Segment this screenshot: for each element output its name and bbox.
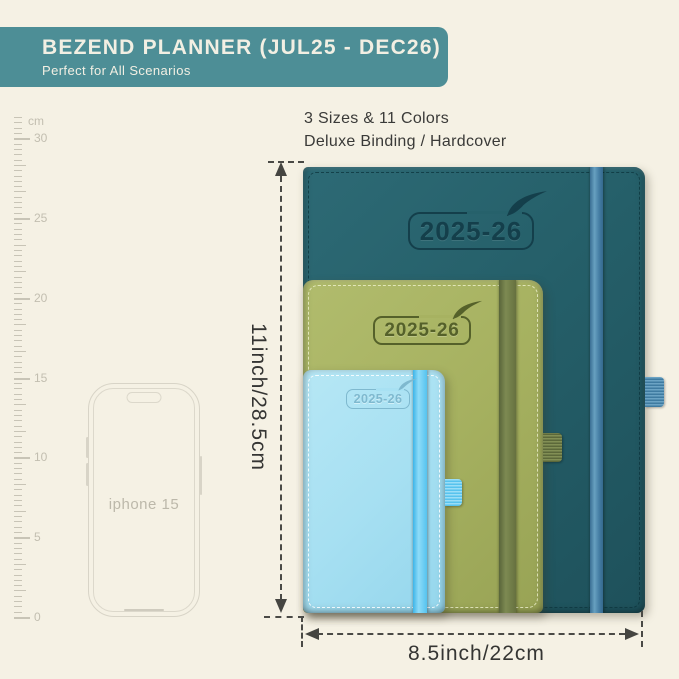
arrow-right-icon: [625, 628, 639, 640]
iphone-label: iphone 15: [89, 496, 199, 513]
ruler-tick: [14, 378, 30, 380]
ruler-tick: [14, 495, 22, 496]
ruler-tick: [14, 516, 22, 517]
ruler-label: 25: [34, 211, 47, 225]
dimension-bracket-left: [301, 616, 303, 647]
ruler-tick: [14, 606, 22, 607]
ruler-tick: [14, 356, 22, 357]
ruler-tick: [14, 388, 22, 389]
year-label: 2025-26: [420, 216, 522, 247]
ruler-tick: [14, 255, 22, 256]
ruler-tick: [14, 420, 22, 421]
feather-icon: [506, 190, 548, 218]
dimension-line-horizontal: [317, 633, 625, 635]
ruler-label: 10: [34, 450, 47, 464]
ruler-tick: [14, 186, 22, 187]
ruler-tick: [14, 585, 22, 586]
iphone-volume-button-down: [86, 463, 89, 486]
ruler-tick: [14, 271, 26, 272]
ruler-tick: [14, 160, 22, 161]
ruler-unit-label: cm: [28, 114, 44, 128]
ruler-tick: [14, 383, 22, 384]
ruler-label: 15: [34, 371, 47, 385]
ruler-tick: [14, 223, 22, 224]
ruler-label: 5: [34, 530, 41, 544]
ruler-tick: [14, 505, 22, 506]
ruler-tick: [14, 601, 22, 602]
ruler-tick: [14, 351, 26, 352]
ruler-tick: [14, 176, 22, 177]
ruler-tick: [14, 234, 22, 235]
feature-line-sizes: 3 Sizes & 11 Colors: [304, 107, 507, 130]
year-label: 2025-26: [354, 392, 403, 406]
ruler-tick: [14, 575, 22, 576]
banner-title: BEZEND PLANNER (JUL25 - DEC26): [42, 36, 448, 60]
ruler-tick: [14, 314, 22, 315]
year-badge: 2025-26: [346, 389, 410, 409]
ruler-tick: [14, 404, 26, 405]
ruler-tick: [14, 553, 22, 554]
pen-loop: [645, 377, 664, 407]
header-banner: BEZEND PLANNER (JUL25 - DEC26) Perfect f…: [0, 27, 448, 87]
ruler-tick: [14, 117, 22, 118]
ruler-tick: [14, 521, 22, 522]
ruler-tick: [14, 442, 22, 443]
planner-small-cover: 2025-26: [303, 370, 445, 613]
ruler-tick: [14, 170, 22, 171]
elastic-band: [499, 280, 516, 613]
height-dimension-label: 11inch/28.5cm: [246, 323, 270, 471]
ruler-tick: [14, 191, 26, 192]
feather-icon: [452, 300, 483, 321]
ruler-tick: [14, 548, 22, 549]
ruler-tick: [14, 303, 22, 304]
planner-large-logo: 2025-26: [408, 212, 534, 250]
ruler-tick: [14, 245, 26, 246]
iphone-volume-button-up: [86, 437, 89, 458]
ruler-tick: [14, 436, 22, 437]
ruler-tick: [14, 250, 22, 251]
iphone-home-indicator: [124, 609, 164, 612]
feature-line-binding: Deluxe Binding / Hardcover: [304, 130, 507, 153]
ruler-tick: [14, 319, 22, 320]
ruler-tick: [14, 340, 22, 341]
ruler-tick: [14, 511, 26, 512]
ruler-tick: [14, 282, 22, 283]
ruler-tick: [14, 479, 22, 480]
ruler-tick: [14, 500, 22, 501]
ruler-tick: [14, 399, 22, 400]
ruler-tick: [14, 559, 22, 560]
ruler-tick: [14, 128, 22, 129]
ruler-label: 30: [34, 131, 47, 145]
ruler-tick: [14, 415, 22, 416]
ruler-tick: [14, 543, 22, 544]
ruler-tick: [14, 293, 22, 294]
iphone-dynamic-island: [127, 392, 162, 403]
ruler-tick: [14, 138, 30, 140]
planner-small-logo: 2025-26: [346, 389, 410, 409]
ruler-tick: [14, 207, 22, 208]
ruler-tick: [14, 468, 22, 469]
ruler-tick: [14, 181, 22, 182]
year-label: 2025-26: [384, 320, 459, 342]
ruler-tick: [14, 569, 22, 570]
ruler-tick: [14, 239, 22, 240]
ruler-tick: [14, 410, 22, 411]
ruler: cm 302520151050: [14, 117, 66, 627]
ruler-tick: [14, 457, 30, 459]
planner-small: 2025-26: [303, 370, 445, 613]
ruler-tick: [14, 324, 26, 325]
banner-subtitle: Perfect for All Scenarios: [42, 63, 448, 78]
ruler-tick: [14, 229, 22, 230]
ruler-tick: [14, 596, 22, 597]
arrow-up-icon: [275, 162, 287, 176]
ruler-tick: [14, 149, 22, 150]
feather-icon: [398, 378, 418, 391]
dimension-bracket-right: [641, 611, 643, 647]
ruler-tick: [14, 431, 26, 432]
dimension-bracket-bottom: [264, 616, 304, 618]
ruler-tick: [14, 564, 26, 565]
ruler-tick: [14, 335, 22, 336]
ruler-tick: [14, 330, 22, 331]
ruler-tick: [14, 590, 26, 591]
ruler-tick: [14, 287, 22, 288]
ruler-tick: [14, 617, 30, 619]
ruler-tick: [14, 426, 22, 427]
ruler-tick: [14, 372, 22, 373]
product-image: BEZEND PLANNER (JUL25 - DEC26) Perfect f…: [0, 0, 679, 679]
ruler-tick: [14, 346, 22, 347]
width-dimension-label: 8.5inch/22cm: [408, 642, 545, 666]
ruler-tick: [14, 218, 30, 220]
elastic-band: [590, 167, 603, 613]
ruler-tick: [14, 580, 22, 581]
ruler-tick: [14, 213, 22, 214]
ruler-label: 20: [34, 291, 47, 305]
ruler-label: 0: [34, 610, 41, 624]
ruler-tick: [14, 447, 22, 448]
ruler-tick: [14, 202, 22, 203]
ruler-tick: [14, 527, 22, 528]
ruler-tick: [14, 197, 22, 198]
ruler-tick: [14, 362, 22, 363]
ruler-tick: [14, 309, 22, 310]
ruler-tick: [14, 473, 22, 474]
ruler-tick: [14, 489, 22, 490]
ruler-tick: [14, 266, 22, 267]
ruler-tick: [14, 532, 22, 533]
ruler-tick: [14, 144, 22, 145]
ruler-tick: [14, 484, 26, 485]
pen-loop: [445, 479, 462, 506]
ruler-tick: [14, 463, 22, 464]
ruler-tick: [14, 298, 30, 300]
feature-text: 3 Sizes & 11 Colors Deluxe Binding / Har…: [304, 107, 507, 153]
iphone-power-button: [200, 456, 203, 495]
elastic-band: [413, 370, 427, 613]
ruler-tick: [14, 367, 22, 368]
iphone-outline: iphone 15: [88, 383, 200, 617]
ruler-tick: [14, 165, 26, 166]
planner-medium-logo: 2025-26: [373, 316, 471, 345]
pen-loop: [543, 433, 562, 462]
arrow-down-icon: [275, 599, 287, 613]
ruler-tick: [14, 452, 22, 453]
ruler-tick: [14, 612, 22, 613]
ruler-tick: [14, 537, 30, 539]
ruler-tick: [14, 122, 22, 123]
ruler-tick: [14, 154, 22, 155]
ruler-tick: [14, 133, 22, 134]
ruler-tick: [14, 394, 22, 395]
ruler-tick: [14, 261, 22, 262]
dimension-line-vertical: [280, 176, 282, 600]
ruler-tick: [14, 277, 22, 278]
